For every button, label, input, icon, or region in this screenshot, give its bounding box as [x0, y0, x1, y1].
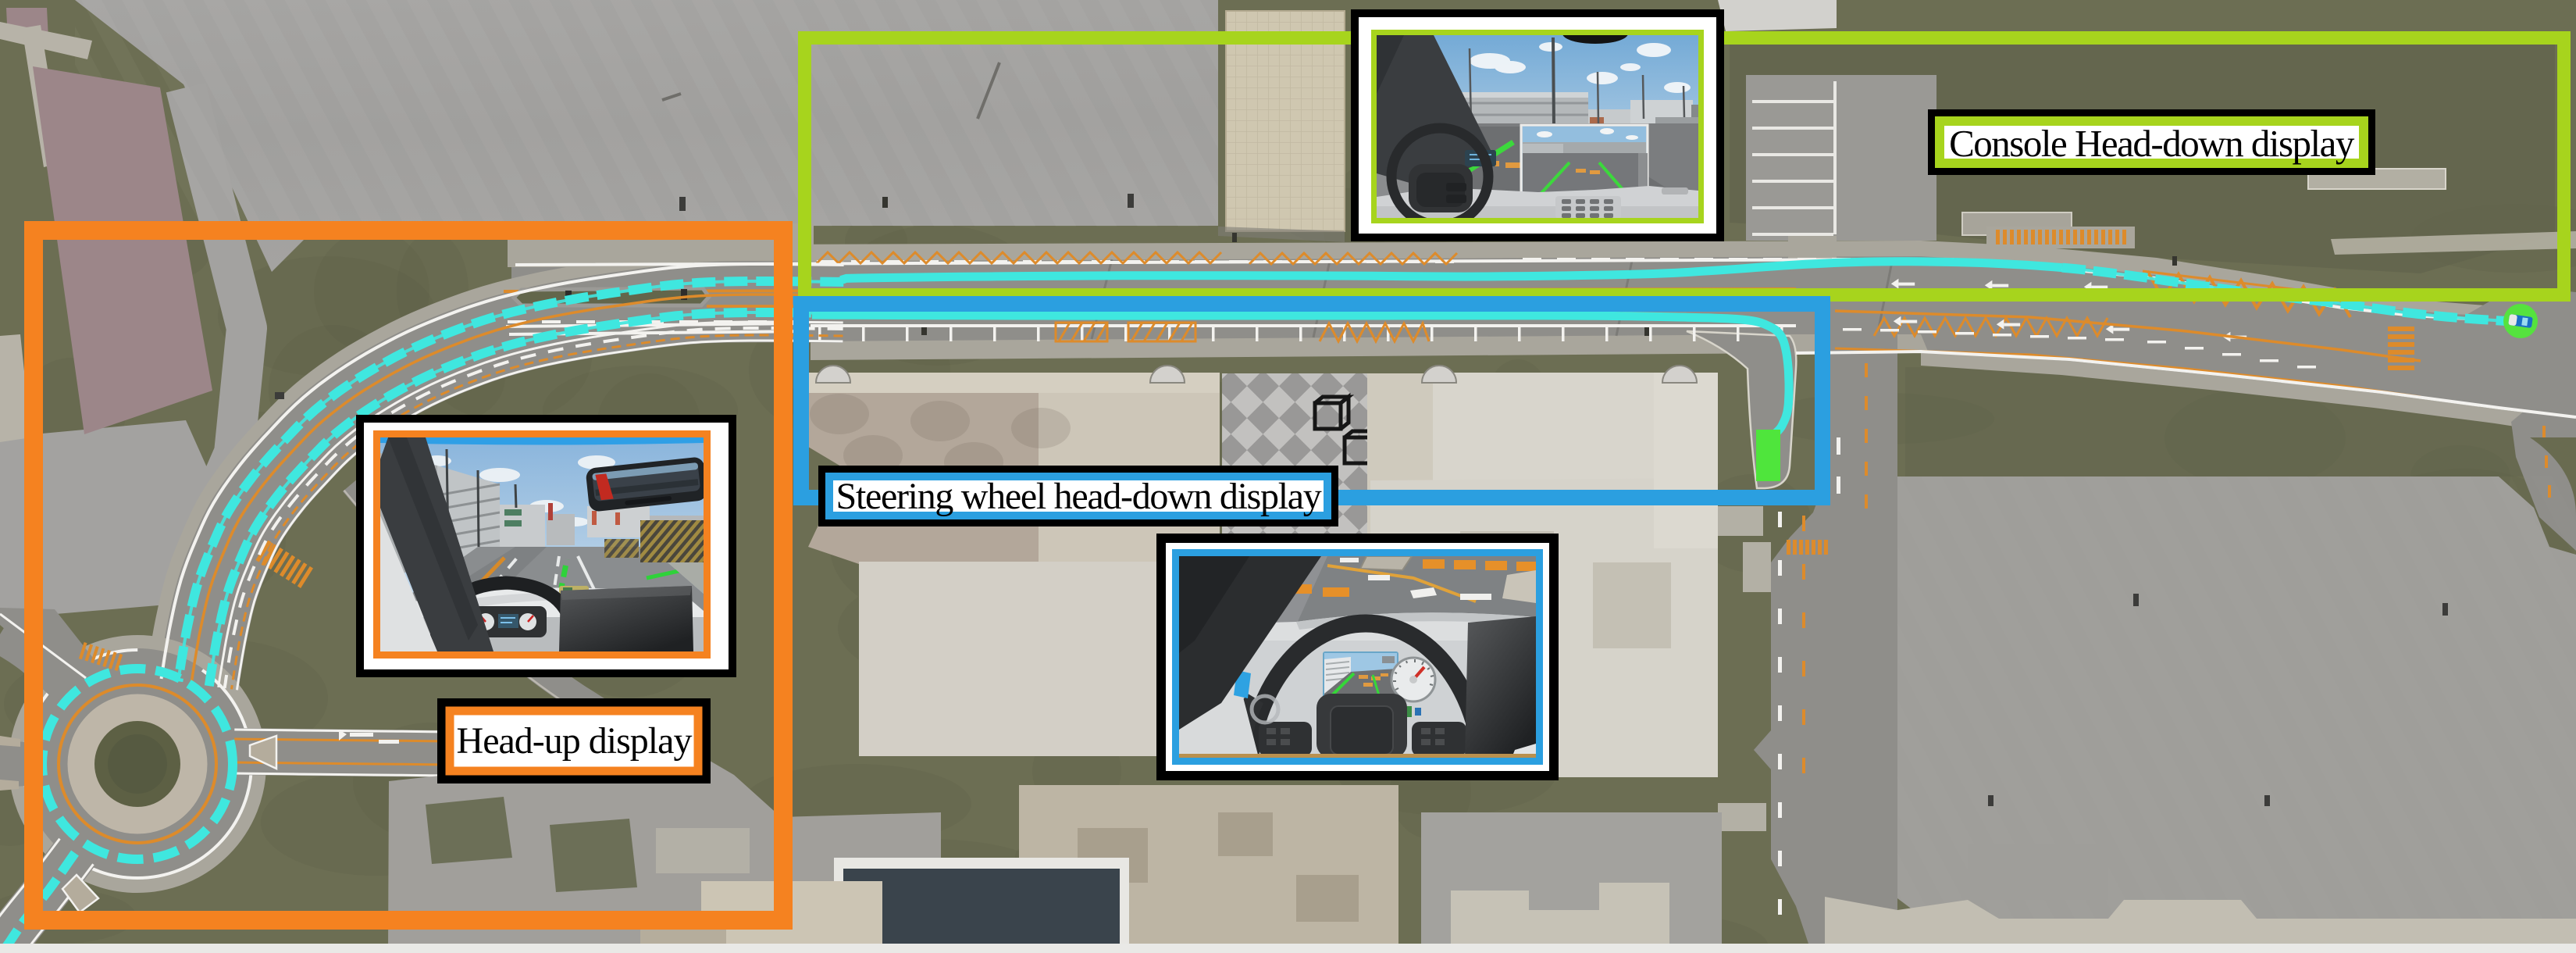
svg-text:Steering wheel head-down displ: Steering wheel head-down display: [836, 476, 1322, 517]
svg-text:Console Head-down display: Console Head-down display: [1949, 122, 2355, 165]
svg-text:Head-up display: Head-up display: [457, 720, 693, 762]
